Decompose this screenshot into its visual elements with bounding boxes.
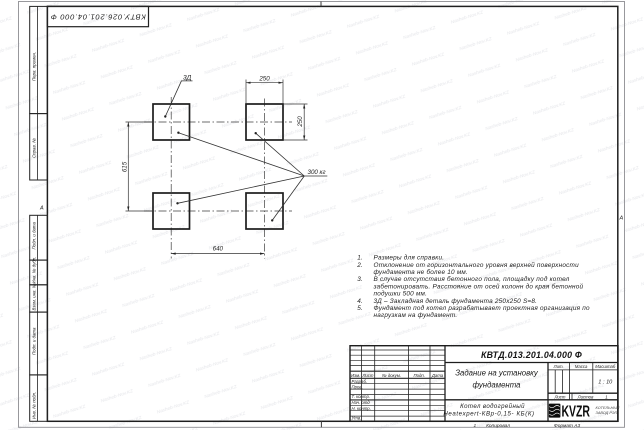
svg-text:нагрузкам на фундамент.: нагрузкам на фундамент. [374,311,458,319]
svg-text:2.: 2. [356,262,363,269]
svg-text:Задание на установку: Задание на установку [455,368,539,377]
svg-text:Heatexpert-КВр-0,15- КБ(К): Heatexpert-КВр-0,15- КБ(К) [443,411,534,418]
svg-text:Изм.: Изм. [351,373,360,378]
svg-text:Масса: Масса [575,364,588,369]
svg-text:забетонировать. Расстояние от: забетонировать. Расстояние от осей колон… [373,282,584,290]
svg-text:1.: 1. [357,255,363,262]
svg-text:Нач. отд: Нач. отд [352,400,371,405]
svg-text:ЗАВОД РЭП: ЗАВОД РЭП [596,411,618,415]
svg-text:4.: 4. [357,298,363,305]
svg-text:КВТУ.026.201.04.000 Ф: КВТУ.026.201.04.000 Ф [50,13,146,22]
svg-text:3Д – Закладная деталь фундамен: 3Д – Закладная деталь фундамента 250х250… [374,297,538,305]
svg-text:Дата: Дата [431,373,444,378]
svg-text:KVZR: KVZR [562,404,591,421]
svg-text:Перв. примен.: Перв. примен. [32,52,37,81]
svg-text:Лист: Лист [553,394,565,399]
svg-text:Разраб.: Разраб. [352,379,368,384]
svg-text:Котел водогрейный: Котел водогрейный [460,403,525,410]
svg-text:Пров.: Пров. [352,384,363,389]
svg-text:1: 1 [474,423,477,429]
svg-text:Отклонение от горизонтального: Отклонение от горизонтального уровня вер… [374,261,580,269]
svg-text:Формат А3: Формат А3 [554,423,581,429]
svg-text:Н. контр.: Н. контр. [352,406,371,411]
svg-text:615: 615 [121,161,128,172]
svg-text:подушки 500 мм.: подушки 500 мм. [374,290,428,298]
svg-text:1 : 10: 1 : 10 [598,379,613,385]
svg-text:№ докум.: № докум. [382,373,401,378]
svg-text:300 кг: 300 кг [308,169,326,176]
svg-text:3Д: 3Д [183,74,192,81]
svg-text:Лист: Лист [361,373,373,378]
svg-text:Листов: Листов [577,394,594,399]
svg-text:фундамента: фундамента [473,380,522,389]
svg-text:Подп. и дата: Подп. и дата [32,221,37,249]
svg-text:Копировал: Копировал [486,423,510,429]
svg-text:А: А [39,206,44,212]
svg-text:КОТЕЛЬНЫЙ: КОТЕЛЬНЫЙ [596,406,620,410]
svg-text:250: 250 [297,116,304,128]
svg-text:3.: 3. [357,276,363,283]
svg-text:фундамента не более 10 мм.: фундамента не более 10 мм. [374,268,469,276]
svg-text:Т. контр.: Т. контр. [352,394,371,399]
svg-text:Утв.: Утв. [352,416,362,421]
svg-text:Подп. и дата: Подп. и дата [32,327,37,355]
svg-text:Подп.: Подп. [413,373,424,378]
svg-text:Масштаб: Масштаб [595,364,616,369]
svg-text:Инв. № подл.: Инв. № подл. [32,392,37,419]
svg-text:А: А [619,216,624,222]
svg-text:640: 640 [213,246,224,253]
svg-text:Фундамент под котел разрабатыв: Фундамент под котел разрабатывает проект… [374,304,591,312]
svg-text:Взам. инв. №: Взам. инв. № [32,283,37,310]
svg-text:Справ. №: Справ. № [32,138,37,158]
svg-text:Размеры для справки.: Размеры для справки. [374,254,445,262]
svg-text:КВТД.013.201.04.000 Ф: КВТД.013.201.04.000 Ф [481,350,582,360]
svg-text:250: 250 [258,75,270,82]
svg-text:В случае отсутствия бетонного: В случае отсутствия бетонного пола, площ… [374,275,570,283]
svg-text:Лит.: Лит. [553,364,564,369]
svg-text:5.: 5. [357,305,363,312]
svg-text:Инв. № дубл.: Инв. № дубл. [32,256,37,283]
